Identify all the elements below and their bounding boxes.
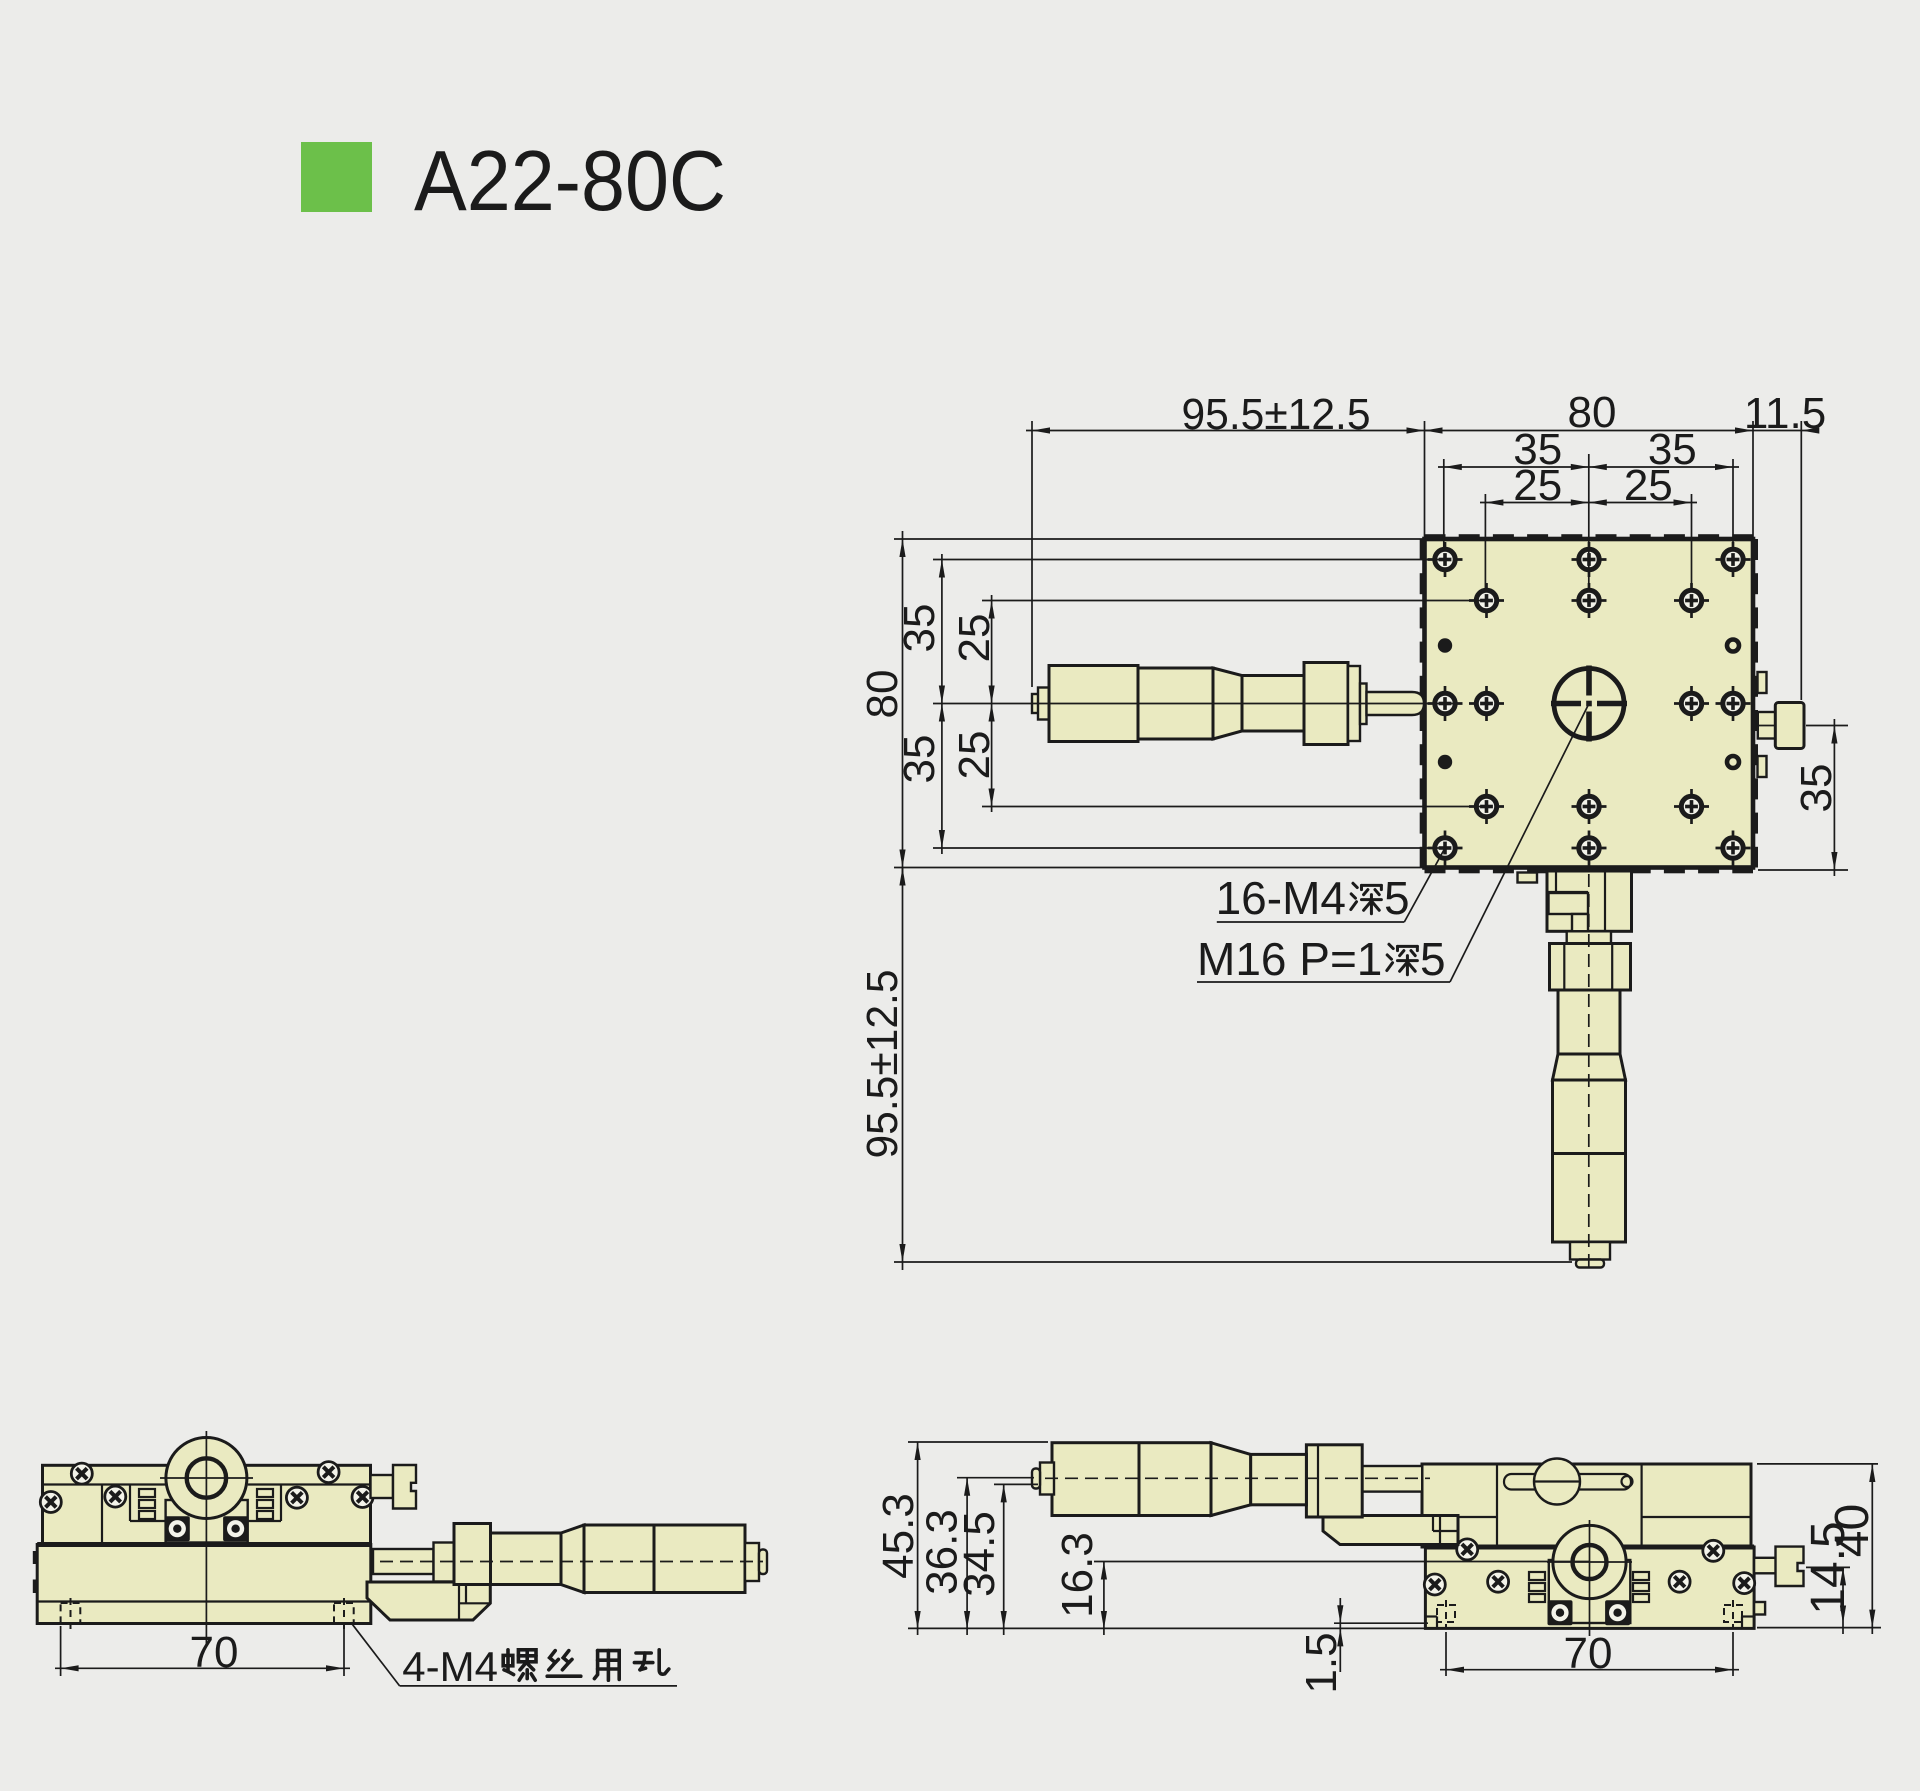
svg-text:45.3: 45.3 (874, 1493, 923, 1579)
svg-text:25: 25 (950, 731, 999, 780)
svg-text:16.3: 16.3 (1053, 1532, 1102, 1618)
svg-text:25: 25 (950, 614, 999, 663)
svg-text:70: 70 (1564, 1629, 1613, 1678)
svg-text:34.5: 34.5 (955, 1511, 1004, 1597)
svg-text:35: 35 (1792, 764, 1841, 813)
svg-text:25: 25 (1624, 461, 1673, 510)
svg-text:5: 5 (1420, 933, 1446, 985)
svg-text:35: 35 (895, 604, 944, 653)
svg-text:M16 P=1: M16 P=1 (1197, 933, 1382, 985)
svg-text:11.5: 11.5 (1744, 389, 1826, 438)
svg-text:80: 80 (1568, 388, 1617, 437)
svg-text:A22-80C: A22-80C (414, 134, 726, 229)
svg-text:70: 70 (190, 1628, 239, 1677)
svg-text:14.5: 14.5 (1802, 1521, 1855, 1614)
svg-text:95.5±12.5: 95.5±12.5 (858, 970, 907, 1159)
svg-text:95.5±12.5: 95.5±12.5 (1182, 390, 1371, 439)
svg-text:16-M4: 16-M4 (1216, 872, 1346, 924)
svg-text:4-M4: 4-M4 (402, 1643, 498, 1690)
svg-text:25: 25 (1513, 461, 1562, 510)
svg-text:5: 5 (1384, 872, 1410, 924)
svg-text:80: 80 (858, 670, 907, 719)
svg-text:1.5: 1.5 (1297, 1632, 1346, 1693)
svg-text:35: 35 (895, 735, 944, 784)
